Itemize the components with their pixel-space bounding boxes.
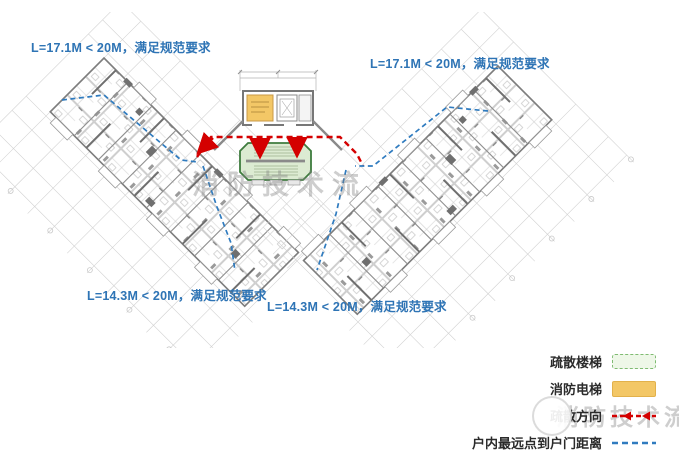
legend-item-fire-elevator: 消防电梯 <box>550 379 656 398</box>
fire-elevator-shaft <box>247 95 273 121</box>
annotation-bottom-left: L=14.3M < 20M，满足规范要求 <box>87 285 267 304</box>
annotation-top-left: L=17.1M < 20M，满足规范要求 <box>31 37 211 56</box>
legend-item-stair: 疏散楼梯 <box>550 352 656 371</box>
amber-box-icon <box>612 381 656 397</box>
red-dashed-arrow-icon <box>612 410 656 422</box>
watermark-logo-circle <box>532 396 572 436</box>
legend-label-fire-elevator: 消防电梯 <box>550 379 602 398</box>
dimension-lines <box>240 70 316 91</box>
legend-label-stair: 疏散楼梯 <box>550 352 602 371</box>
green-dashed-box-icon <box>612 354 656 369</box>
evacuation-floor-plan-page: L=17.1M < 20M，满足规范要求 L=17.1M < 20M，满足规范要… <box>0 0 679 466</box>
legend-label-unit-distance: 户内最远点到户门距离 <box>472 433 602 452</box>
blue-dashed-line-icon <box>612 437 656 449</box>
annotation-bottom-center: L=14.3M < 20M，满足规范要求 <box>267 296 447 315</box>
legend-item-unit-distance: 户内最远点到户门距离 <box>472 433 656 452</box>
annotation-top-right: L=17.1M < 20M，满足规范要求 <box>370 53 550 72</box>
watermark-center: 消防技术流 <box>192 163 367 202</box>
